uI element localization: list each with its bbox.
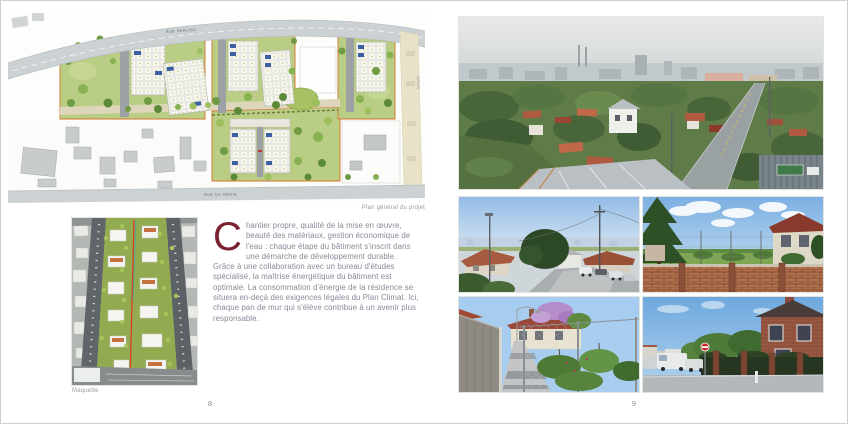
aerial-panorama-drawing [459,17,823,189]
site-plan-drawing: RUE BERLIOZ JARDIN RUE DU GÉNIE [8,11,425,203]
photo-brick-house-street [643,297,823,392]
drop-cap: C [213,222,242,253]
maquette-caption: Maquette [72,388,99,394]
photo-vacant-lot [643,197,823,292]
article-text: Chantier propre, qualité de la mise en œ… [213,221,426,324]
model-site [96,218,178,385]
brick-house-street-drawing [643,297,823,392]
street-view-drawing [459,197,639,292]
side-label-jardin: JARDIN [416,74,421,90]
site-plan-caption: Plan général du projet [305,205,425,211]
brick-wall [643,263,823,292]
left-house [645,245,665,261]
maquette-drawing [72,218,197,385]
photo-street-view [459,197,639,292]
street-label-bottom: RUE DU GÉNIE [204,191,237,197]
article-paragraph-2: Grâce à une collaboration avec un bureau… [213,262,426,324]
vacant-lot-drawing [643,197,823,292]
photo-garden-alley [459,297,639,392]
page-number-right: 9 [622,399,646,408]
photo-aerial-panorama [459,17,823,189]
maquette-image [72,218,197,385]
page-number-left: 8 [198,399,222,408]
paragraph-1-text: hantier propre, qualité de la mise en œu… [246,221,411,261]
garden-alley-drawing [459,297,639,392]
article-paragraph-1: Chantier propre, qualité de la mise en œ… [213,221,426,262]
book-spread: RUE BERLIOZ JARDIN RUE DU GÉNIE Plan gén… [0,0,848,424]
site-plan-image: RUE BERLIOZ JARDIN RUE DU GÉNIE [8,11,425,203]
road-side-east: JARDIN [400,31,422,189]
